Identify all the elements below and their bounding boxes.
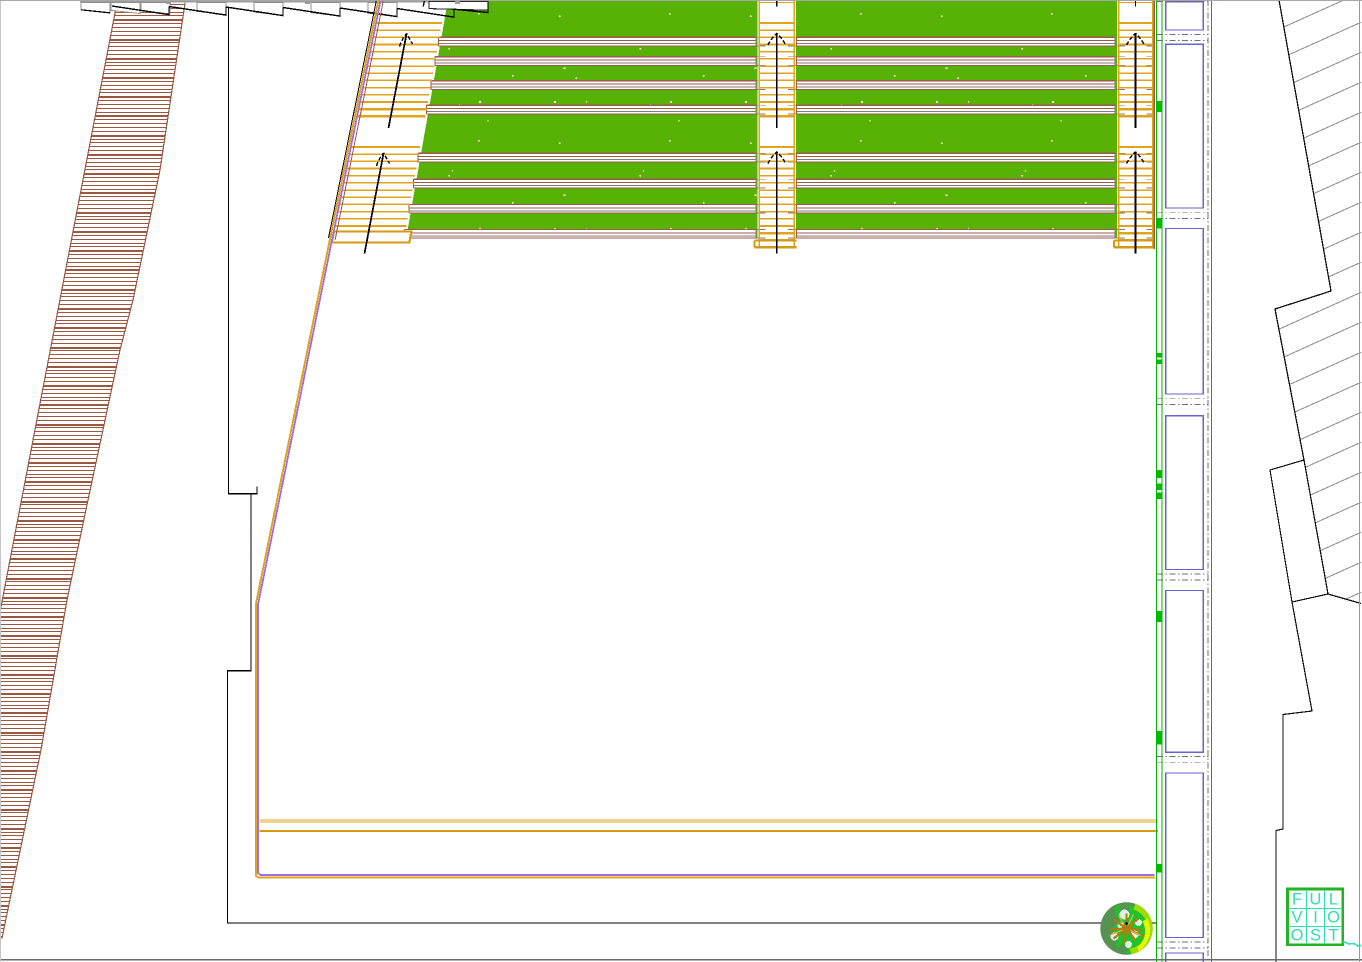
svg-text:T: T: [1328, 926, 1338, 944]
svg-text:S: S: [1310, 926, 1321, 944]
svg-text:O: O: [1327, 908, 1340, 926]
svg-text:V: V: [1291, 908, 1302, 926]
svg-text:F: F: [1292, 891, 1302, 909]
svg-text:U: U: [1310, 891, 1322, 909]
svg-text:I: I: [1313, 908, 1318, 926]
svg-text:L: L: [1329, 891, 1338, 909]
svg-text:O: O: [1291, 926, 1304, 944]
